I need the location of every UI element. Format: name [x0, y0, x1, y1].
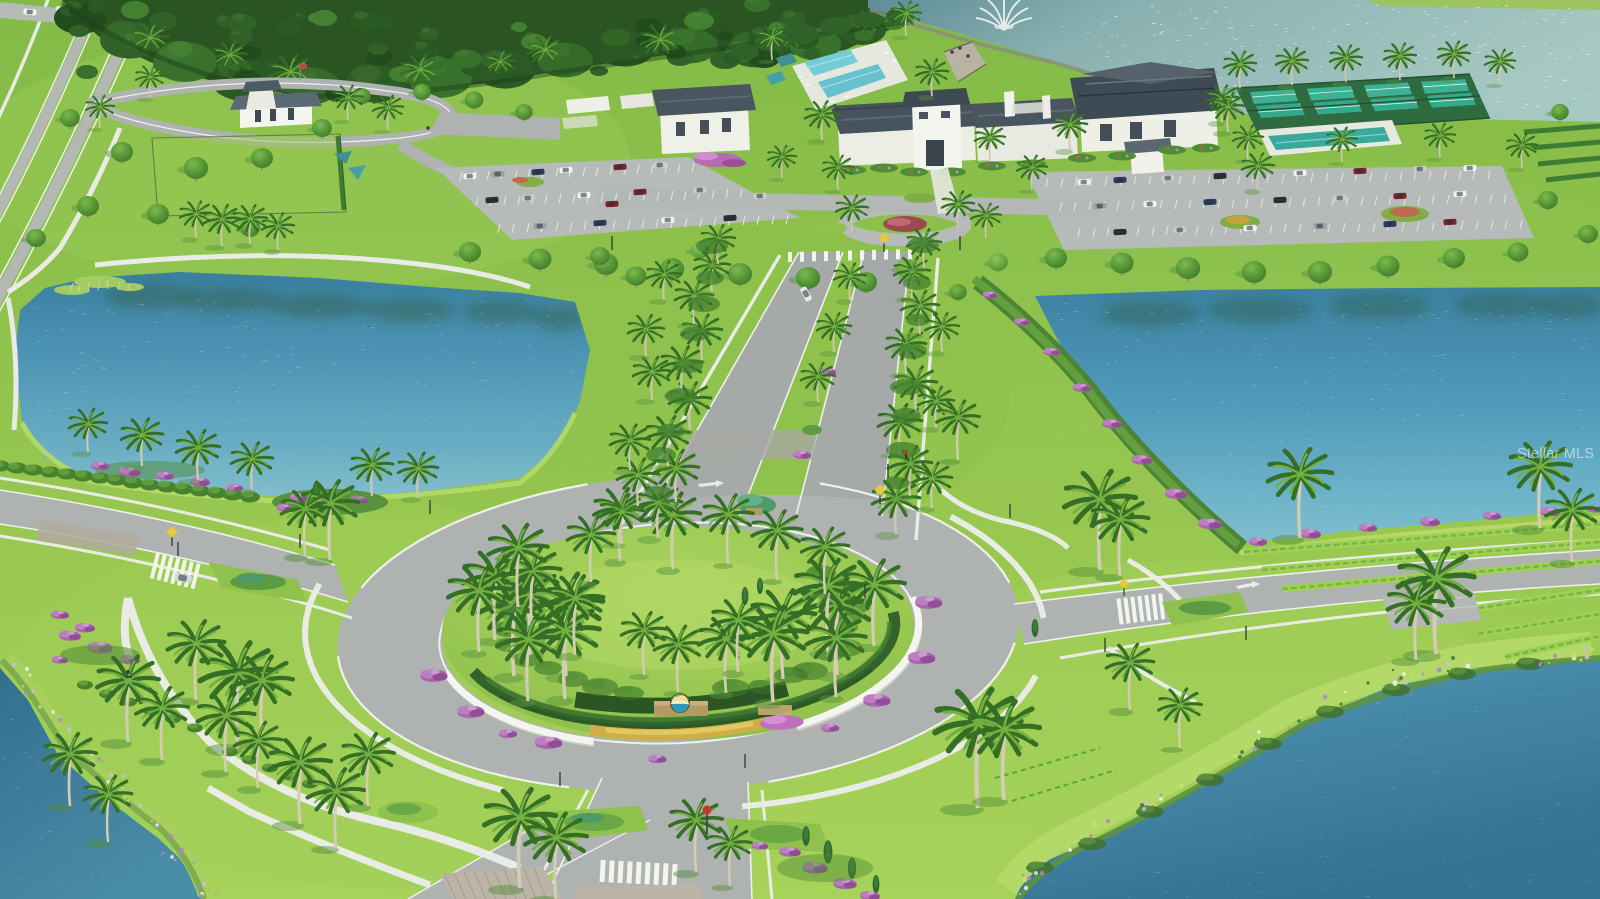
- svg-text:Stellar MLS: Stellar MLS: [1517, 446, 1594, 462]
